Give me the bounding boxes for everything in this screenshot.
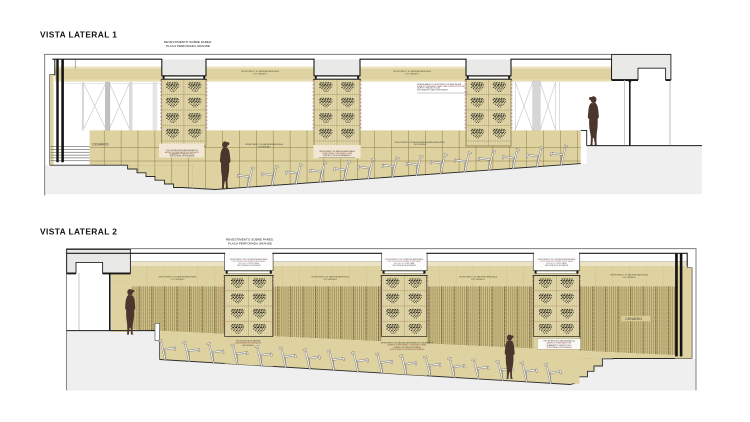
svg-text:VISTA LATERAL 1: VISTA LATERAL 1 [40, 30, 117, 40]
svg-text:COR CARVALHO: COR CARVALHO [170, 278, 185, 281]
svg-text:REVESTIMENTO DE MADEIRA RANHUR: REVESTIMENTO DE MADEIRA RANHURADA [610, 274, 648, 277]
svg-text:COR CARVALHO: COR CARVALHO [622, 276, 637, 279]
svg-text:CENÁRIO: CENÁRIO [625, 317, 642, 321]
svg-text:PLACA PERFORADA GRANDE: PLACA PERFORADA GRANDE [228, 241, 272, 245]
svg-text:COR NATURAL: COR NATURAL [258, 145, 271, 148]
svg-text:REVESTIMENTO DE MADEIRA RANHUR: REVESTIMENTO DE MADEIRA RANHURADA [459, 275, 497, 278]
svg-text:REVESTIMENTO DE MADEIRA RANHUR: REVESTIMENTO DE MADEIRA RANHURADA [159, 275, 197, 278]
svg-text:VER DETALHE DE MONTAGEM: VER DETALHE DE MONTAGEM [547, 346, 572, 349]
svg-text:COR CARVALHO: COR CARVALHO [405, 73, 420, 76]
svg-text:COR CARVALHO: COR CARVALHO [253, 73, 268, 76]
svg-text:VISTA LATERAL 2: VISTA LATERAL 2 [40, 227, 117, 237]
svg-text:COR CARVALHO: COR CARVALHO [323, 278, 338, 281]
svg-text:FIXACAO OCULTA E ACABAMENTO: FIXACAO OCULTA E ACABAMENTO [323, 154, 352, 157]
svg-text:VER DETALHE: VER DETALHE [414, 143, 427, 146]
svg-text:VER DETALHE DE MONTAGEM E REMA: VER DETALHE DE MONTAGEM E REMATES [390, 348, 426, 351]
svg-text:REVESTIMENTO DE MADEIRA RANHUR: REVESTIMENTO DE MADEIRA RANHURADA [311, 275, 349, 278]
svg-text:VER DETALHE: VER DETALHE [242, 344, 254, 347]
svg-text:COR CARVALHO: COR CARVALHO [471, 278, 486, 281]
svg-text:PLACA PERFORADA GRANDE: PLACA PERFORADA GRANDE [166, 44, 210, 48]
svg-text:VER DETALHE DE MONTAGEM: VER DETALHE DE MONTAGEM [170, 155, 195, 158]
svg-text:REVESTIMENTO DE MADEIRA RANHUR: REVESTIMENTO DE MADEIRA RANHURADA [241, 70, 279, 73]
svg-text:CENÁRIO: CENÁRIO [92, 143, 109, 147]
svg-text:REVESTIMENTO DE MADEIRA RANHUR: REVESTIMENTO DE MADEIRA RANHURADA [393, 70, 431, 73]
